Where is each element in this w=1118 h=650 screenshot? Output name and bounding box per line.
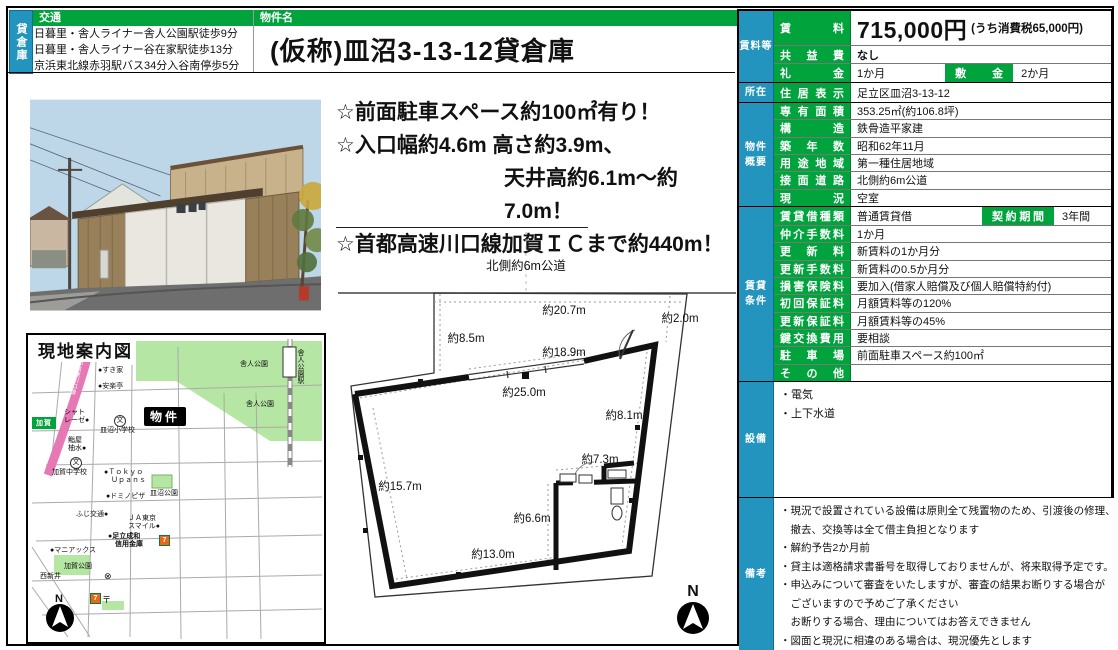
map-kaga-ic-badge: 加賀 [32,417,56,429]
map-label-dominos: ●ドミノピザ [106,493,145,501]
section-label-overview: 物件 概要 [739,103,774,206]
plan-dim-room-left: 約6.6m [513,511,550,525]
row-value: 北側約6m公道 [851,172,1111,188]
map-property-badge: 物件 [144,407,186,426]
row-value: 新賃料の0.5か月分 [851,261,1111,277]
row-label: 仲介手数料 [774,226,851,242]
row-label-kyoekihi: 共益費 [774,46,851,63]
row-value: 鉄骨造平家建 [851,120,1111,136]
row-value: 353.25㎡(約106.8坪) [851,103,1111,119]
row-label: 専有面積 [774,103,851,119]
row-value: 1か月 [851,226,1111,242]
map-label-maniacs: ●マニアックス [50,547,96,555]
map-label-toneri-park: 舎人公園 [246,401,274,409]
highlight-line: ☆入口幅約4.6m 高さ約3.9m、 [336,129,736,162]
flyer-page: 貸倉庫 交通 物件名 日暮里・舎人ライナー舎人公園駅徒歩9分 日暮里・舎人ライナ… [0,0,1118,650]
facilities-value: ・電気 ・上下水道 [774,382,1111,497]
map-label-sukiya: ●すき家 [98,367,123,375]
property-name-header: 物件名 [254,10,741,26]
map-label-saranuma-es: 皿沼小学校 [100,427,135,435]
row-label: 接面道路 [774,172,851,188]
transport-lines: 日暮里・舎人ライナー舎人公園駅徒歩9分 日暮里・舎人ライナー谷在家駅徒歩13分 … [34,26,252,72]
plan-dim-room-top: 約7.3m [581,452,618,466]
rent-tax-note: (うち消費税65,000円) [971,20,1083,36]
map-school-icon: 文 [114,415,126,427]
floor-plan: 北側約6m公道 [336,230,740,650]
row-value: 第一種住居地域 [851,155,1111,171]
map-label-ja-tokyo: ＪＡ東京 スマイル● [128,515,160,531]
row-label: 用途地域 [774,155,851,171]
section-label-terms: 賃貸 条件 [739,207,774,381]
plan-north-letter: N [687,583,699,600]
plan-road-label: 北側約6m公道 [486,258,566,273]
row-label: 更新手数料 [774,261,851,277]
remarks-value: ・現況で設置されている設備は原則全て残置物のため、引渡後の修理、 撤去、交換等は… [774,498,1118,650]
map-label-kaga-park: 加賀公園 [64,563,92,571]
map-label-sushi: 鮨屋 柚水● [68,437,86,453]
section-label-rent: 賃料等 [739,11,774,82]
map-seveneleven-icon: 7 [90,593,101,604]
map-label-kaga-jhs: 加賀中学校 [52,469,87,477]
row-label-address: 住居表示 [774,83,851,102]
map-kouban-icon: ⊗ [104,571,112,582]
row-value [851,365,1111,381]
kyoekihi-value: なし [851,46,1111,63]
row-value: 空室 [851,190,1111,206]
plan-dim-entrance: 約18.9m [542,345,585,359]
property-name: (仮称)皿沼3-13-12貸倉庫 [260,26,740,72]
row-value: 普通賃貸借 契約期間 3年間 [851,207,1111,225]
row-label: 現況 [774,190,851,206]
reikin-value: 1か月 [857,65,885,81]
map-school-icon: 文 [70,457,82,469]
map-seveneleven-icon: 7 [159,535,170,546]
section-overview: 物件 概要 専有面積353.25㎡(約106.8坪) 構造鉄骨造平家建 築年数昭… [739,103,1111,207]
row-value: 新賃料の1か月分 [851,243,1111,259]
map-title: 現地案内図 [36,337,135,362]
row-label: 駐車場 [774,347,851,363]
map-label-anrakutei: ●安楽亭 [98,383,123,391]
plan-dim-front: 約25.0m [502,385,545,399]
section-label-remarks: 備考 [739,498,774,650]
section-remarks: 備考 ・現況で設置されている設備は原則全て残置物のため、引渡後の修理、 撤去、交… [739,498,1111,650]
row-label: 賃貸借種類 [774,207,851,225]
header-divider [253,10,254,72]
side-tab-warehouse: 貸倉庫 [9,10,33,74]
section-rent: 賃料等 賃料 715,000円 (うち消費税65,000円) 共益費 なし 礼金 [739,11,1111,83]
row-value: 昭和62年11月 [851,138,1111,154]
row-label: 損害保険料 [774,278,851,294]
shikikin-value: 2か月 [1021,65,1049,81]
row-label: 構造 [774,120,851,136]
section-label-facilities: 設備 [739,382,774,497]
map-label-fuji: ふじ交通● [76,511,108,519]
section-label-location: 所在 [739,83,774,102]
map-label-adachi-bank: ●足立成和 信用金庫 [108,533,143,549]
sheet-border: 貸倉庫 交通 物件名 日暮里・舎人ライナー舎人公園駅徒歩9分 日暮里・舎人ライナ… [6,6,1114,646]
map-label-saranuma-park: 皿沼公園 [150,490,178,498]
plan-dim-top-right: 約2.0m [661,311,698,325]
row-value: 要加入(借家人賠償及び個人賠償特約付) [851,278,1111,294]
highlight-divider [336,227,588,228]
map-north-letter: N [55,593,63,605]
row-value: 前面駐車スペース約100㎡ [851,347,1111,363]
property-detail-table: 賃料等 賃料 715,000円 (うち消費税65,000円) 共益費 なし 礼金 [737,9,1113,646]
section-location: 所在 住居表示 足立区皿沼3-13-12 [739,83,1111,103]
section-terms: 賃貸 条件 賃貸借種類 普通賃貸借 契約期間 3年間 仲介手数料1か月 更新料新… [739,207,1111,382]
map-station-box [283,347,296,377]
transport-header: 交通 [33,10,259,26]
row-label: その他 [774,365,851,381]
contract-period-badge: 契約期間 [982,207,1054,225]
row-label: 更新料 [774,243,851,259]
map-postoffice-icon: 〒 [102,593,111,606]
highlight-line: ☆前面駐車スペース約100㎡有り！ [336,96,736,129]
plan-dim-right: 約8.1m [605,408,642,422]
plan-dim-bottom: 約13.0m [471,547,514,561]
row-label-reikin: 礼金 [774,64,851,82]
photo-red-bucket [299,286,309,300]
contract-period-value: 3年間 [1062,208,1090,224]
map-label-chateraise: シャト レーゼ● [64,409,89,425]
plan-dim-left: 約15.7m [378,479,421,493]
row-value: 要相談 [851,330,1111,346]
row-label: 初回保証料 [774,295,851,311]
reikin-value-cell: 1か月 敷金 2か月 [851,64,1111,82]
row-label: 築年数 [774,138,851,154]
highlight-line: 天井高約6.1m～約7.0m！ [336,162,736,228]
rent-amount: 715,000円 [857,11,967,45]
shikikin-badge: 敷金 [945,64,1013,82]
row-label-rent: 賃料 [774,11,851,45]
map-park-saranuma [152,475,172,488]
row-label: 更新保証料 [774,313,851,329]
map-label-toneri-station: 舎人公園駅 [296,349,304,384]
row-label: 鍵交換費用 [774,330,851,346]
section-facilities: 設備 ・電気 ・上下水道 [739,382,1111,498]
plan-dim-top: 約20.7m [542,303,585,317]
row-value: 月額賃料等の120% [851,295,1111,311]
rent-value-cell: 715,000円 (うち消費税65,000円) [851,11,1111,45]
header-underline [8,72,735,73]
map-label-nishiarai: 西新井 [40,573,61,581]
address-value: 足立区皿沼3-13-12 [851,83,1111,102]
property-photo [30,99,321,311]
plan-dimension-lines [360,294,684,579]
plan-dim-left-setback: 約8.5m [447,331,484,345]
map-label-tokyo-upans: ●Ｔｏｋｙｏ Ｕｐａｎｓ [104,469,146,485]
location-map: 現地案内図 ●すき家 ●安楽亭 シャト レーゼ● 文 皿沼小学校 物件 鮨屋 柚… [26,333,326,644]
plan-fixtures [560,470,626,520]
row-value: 月額賃料等の45% [851,313,1111,329]
map-label-toneri-park: 舎人公園 [240,361,268,369]
